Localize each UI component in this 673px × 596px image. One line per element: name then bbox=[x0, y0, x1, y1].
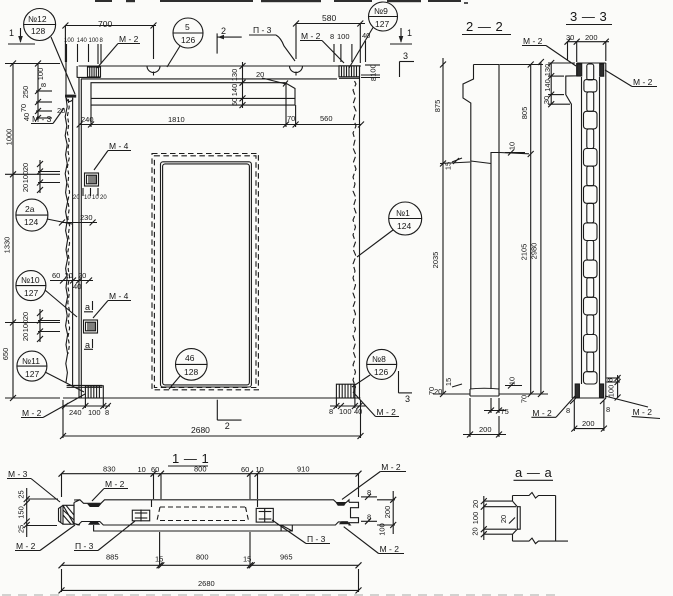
svg-text:40: 40 bbox=[22, 113, 31, 121]
svg-text:15: 15 bbox=[444, 162, 453, 170]
svg-text:128: 128 bbox=[31, 26, 45, 36]
svg-text:М - 2: М - 2 bbox=[381, 462, 401, 472]
svg-text:130: 130 bbox=[543, 64, 552, 77]
svg-text:20: 20 bbox=[21, 163, 30, 171]
svg-text:2: 2 bbox=[225, 421, 230, 431]
svg-text:60: 60 bbox=[151, 465, 159, 474]
svg-text:100: 100 bbox=[21, 171, 30, 184]
svg-text:№10: №10 bbox=[21, 275, 40, 285]
svg-text:140: 140 bbox=[543, 79, 552, 92]
svg-text:200: 200 bbox=[585, 33, 598, 42]
svg-text:15: 15 bbox=[444, 378, 453, 386]
svg-text:128: 128 bbox=[184, 367, 198, 377]
svg-text:100: 100 bbox=[607, 385, 616, 398]
svg-text:50: 50 bbox=[230, 98, 239, 106]
svg-text:40: 40 bbox=[354, 407, 362, 416]
svg-text:20: 20 bbox=[78, 271, 86, 280]
svg-text:700: 700 bbox=[98, 19, 112, 29]
svg-text:126: 126 bbox=[181, 35, 195, 45]
svg-text:М - 2: М - 2 bbox=[380, 544, 400, 554]
svg-text:М - 4: М - 4 bbox=[109, 141, 129, 151]
svg-text:30: 30 bbox=[566, 33, 574, 42]
svg-text:М - 2: М - 2 bbox=[377, 407, 397, 417]
svg-text:2105: 2105 bbox=[520, 244, 529, 261]
svg-text:а: а bbox=[85, 302, 90, 312]
svg-text:М - 3: М - 3 bbox=[8, 469, 28, 479]
svg-text:10: 10 bbox=[256, 465, 264, 474]
svg-text:М - 2: М - 2 bbox=[633, 407, 653, 417]
svg-text:70: 70 bbox=[19, 104, 28, 112]
svg-text:650: 650 bbox=[1, 348, 10, 361]
svg-text:140: 140 bbox=[230, 84, 239, 97]
svg-text:240: 240 bbox=[69, 408, 82, 417]
svg-text:М - 4: М - 4 bbox=[109, 291, 129, 301]
svg-text:70: 70 bbox=[520, 395, 529, 403]
svg-text:2980: 2980 bbox=[530, 243, 539, 260]
svg-text:240: 240 bbox=[81, 115, 94, 124]
svg-text:40: 40 bbox=[73, 282, 81, 291]
svg-text:№9: №9 bbox=[374, 6, 388, 16]
svg-text:М - 2: М - 2 bbox=[22, 408, 42, 418]
svg-text:2680: 2680 bbox=[198, 579, 215, 588]
svg-text:20: 20 bbox=[471, 527, 480, 535]
svg-text:100: 100 bbox=[64, 38, 75, 44]
svg-text:100: 100 bbox=[471, 512, 480, 525]
svg-text:8: 8 bbox=[105, 408, 109, 417]
svg-text:100: 100 bbox=[89, 38, 100, 44]
svg-text:3: 3 bbox=[405, 394, 410, 404]
svg-text:965: 965 bbox=[280, 553, 293, 562]
svg-text:20: 20 bbox=[256, 70, 264, 79]
svg-text:800: 800 bbox=[196, 553, 209, 562]
svg-text:2035: 2035 bbox=[431, 252, 440, 269]
svg-text:100: 100 bbox=[339, 407, 352, 416]
svg-text:8: 8 bbox=[330, 32, 334, 41]
svg-text:124: 124 bbox=[397, 221, 411, 231]
svg-text:М - 2: М - 2 bbox=[105, 479, 125, 489]
svg-text:75: 75 bbox=[501, 407, 509, 416]
svg-text:20: 20 bbox=[499, 515, 508, 523]
svg-text:100: 100 bbox=[36, 68, 45, 81]
svg-text:М - 2: М - 2 bbox=[16, 541, 36, 551]
svg-text:130: 130 bbox=[230, 69, 239, 82]
svg-text:60: 60 bbox=[241, 465, 249, 474]
svg-text:1: 1 bbox=[407, 28, 412, 38]
svg-text:100: 100 bbox=[21, 320, 30, 333]
svg-text:800: 800 bbox=[194, 465, 207, 474]
svg-text:20: 20 bbox=[57, 106, 65, 115]
svg-text:20: 20 bbox=[21, 312, 30, 320]
svg-text:124: 124 bbox=[24, 217, 38, 227]
svg-text:а — а: а — а bbox=[515, 465, 552, 480]
svg-text:100: 100 bbox=[88, 408, 101, 417]
svg-text:1000: 1000 bbox=[5, 129, 14, 146]
svg-text:№11: №11 bbox=[22, 356, 40, 366]
svg-text:5: 5 bbox=[185, 22, 190, 32]
svg-text:20: 20 bbox=[471, 500, 480, 508]
svg-text:1810: 1810 bbox=[168, 115, 185, 124]
svg-text:М - 3: М - 3 bbox=[32, 114, 52, 124]
svg-text:46: 46 bbox=[185, 353, 195, 363]
svg-text:70: 70 bbox=[287, 114, 295, 123]
svg-text:8: 8 bbox=[606, 378, 615, 382]
svg-text:20: 20 bbox=[65, 271, 73, 280]
svg-text:М - 2: М - 2 bbox=[119, 34, 139, 44]
svg-text:100: 100 bbox=[337, 32, 350, 41]
svg-text:1: 1 bbox=[9, 28, 14, 38]
svg-text:3: 3 bbox=[403, 51, 408, 61]
svg-text:8: 8 bbox=[606, 405, 610, 414]
svg-text:П - 3: П - 3 bbox=[75, 541, 94, 551]
svg-text:250: 250 bbox=[21, 86, 30, 99]
svg-text:200: 200 bbox=[479, 425, 492, 434]
svg-text:8: 8 bbox=[566, 406, 570, 415]
svg-text:8: 8 bbox=[367, 488, 371, 497]
svg-text:875: 875 bbox=[433, 100, 442, 113]
svg-text:60: 60 bbox=[52, 271, 60, 280]
svg-text:8: 8 bbox=[329, 407, 333, 416]
svg-text:126: 126 bbox=[374, 367, 388, 377]
svg-text:140: 140 bbox=[77, 38, 88, 44]
svg-text:15: 15 bbox=[243, 555, 251, 564]
svg-text:М - 2: М - 2 bbox=[532, 408, 552, 418]
svg-text:1330: 1330 bbox=[3, 237, 12, 254]
svg-text:а: а bbox=[85, 340, 90, 350]
svg-text:25: 25 bbox=[17, 490, 26, 498]
svg-text:20: 20 bbox=[21, 184, 30, 192]
svg-text:830: 830 bbox=[103, 465, 116, 474]
svg-text:10: 10 bbox=[508, 142, 517, 150]
svg-text:127: 127 bbox=[375, 19, 389, 29]
svg-text:8: 8 bbox=[367, 513, 371, 522]
svg-text:20: 20 bbox=[100, 195, 107, 201]
svg-text:25: 25 bbox=[17, 525, 26, 533]
svg-text:885: 885 bbox=[106, 553, 119, 562]
svg-text:№12: №12 bbox=[28, 14, 47, 24]
svg-text:20: 20 bbox=[73, 195, 80, 201]
svg-text:2: 2 bbox=[221, 26, 226, 36]
svg-text:560: 560 bbox=[320, 114, 333, 123]
svg-text:910: 910 bbox=[297, 465, 310, 474]
svg-text:127: 127 bbox=[24, 288, 38, 298]
svg-text:15: 15 bbox=[155, 555, 163, 564]
svg-text:100: 100 bbox=[378, 523, 387, 536]
svg-text:№1: №1 bbox=[396, 208, 410, 218]
svg-text:2 — 2: 2 — 2 bbox=[466, 19, 503, 34]
svg-text:М - 2: М - 2 bbox=[301, 31, 321, 41]
svg-text:М - 2: М - 2 bbox=[633, 77, 653, 87]
svg-text:2680: 2680 bbox=[191, 425, 210, 435]
svg-text:10: 10 bbox=[138, 465, 146, 474]
svg-text:805: 805 bbox=[520, 107, 529, 120]
svg-text:230: 230 bbox=[80, 213, 93, 222]
svg-text:30: 30 bbox=[542, 96, 551, 104]
svg-text:2а: 2а bbox=[25, 204, 35, 214]
svg-text:127: 127 bbox=[25, 369, 39, 379]
svg-text:200: 200 bbox=[383, 506, 392, 519]
svg-text:П - 3: П - 3 bbox=[253, 25, 272, 35]
svg-text:70: 70 bbox=[427, 387, 436, 395]
svg-text:М - 2: М - 2 bbox=[523, 36, 543, 46]
svg-text:3 — 3: 3 — 3 bbox=[570, 9, 607, 24]
svg-text:200: 200 bbox=[582, 419, 595, 428]
svg-text:150: 150 bbox=[17, 506, 26, 519]
svg-text:8: 8 bbox=[39, 83, 48, 87]
svg-text:№8: №8 bbox=[372, 354, 386, 364]
svg-text:П - 3: П - 3 bbox=[307, 534, 326, 544]
svg-text:20: 20 bbox=[21, 333, 30, 341]
svg-text:580: 580 bbox=[322, 13, 336, 23]
